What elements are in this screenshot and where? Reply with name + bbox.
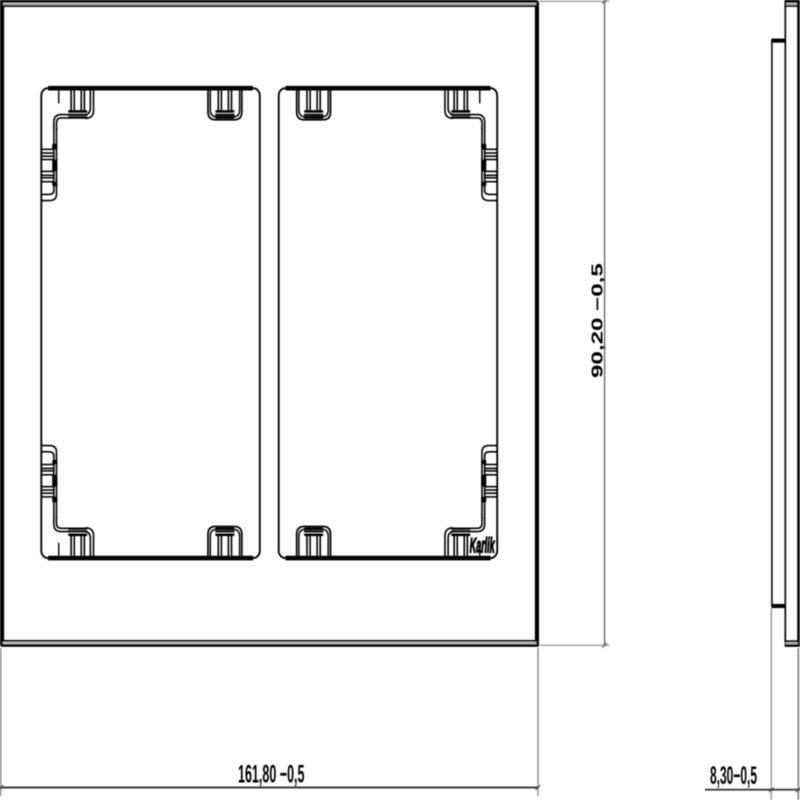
svg-text:8,30−0,5: 8,30−0,5 bbox=[710, 763, 757, 790]
svg-text:Karlik: Karlik bbox=[470, 534, 495, 557]
svg-text:90,20 −0,5: 90,20 −0,5 bbox=[590, 263, 607, 378]
svg-text:161,80 −0,5: 161,80 −0,5 bbox=[238, 762, 305, 789]
